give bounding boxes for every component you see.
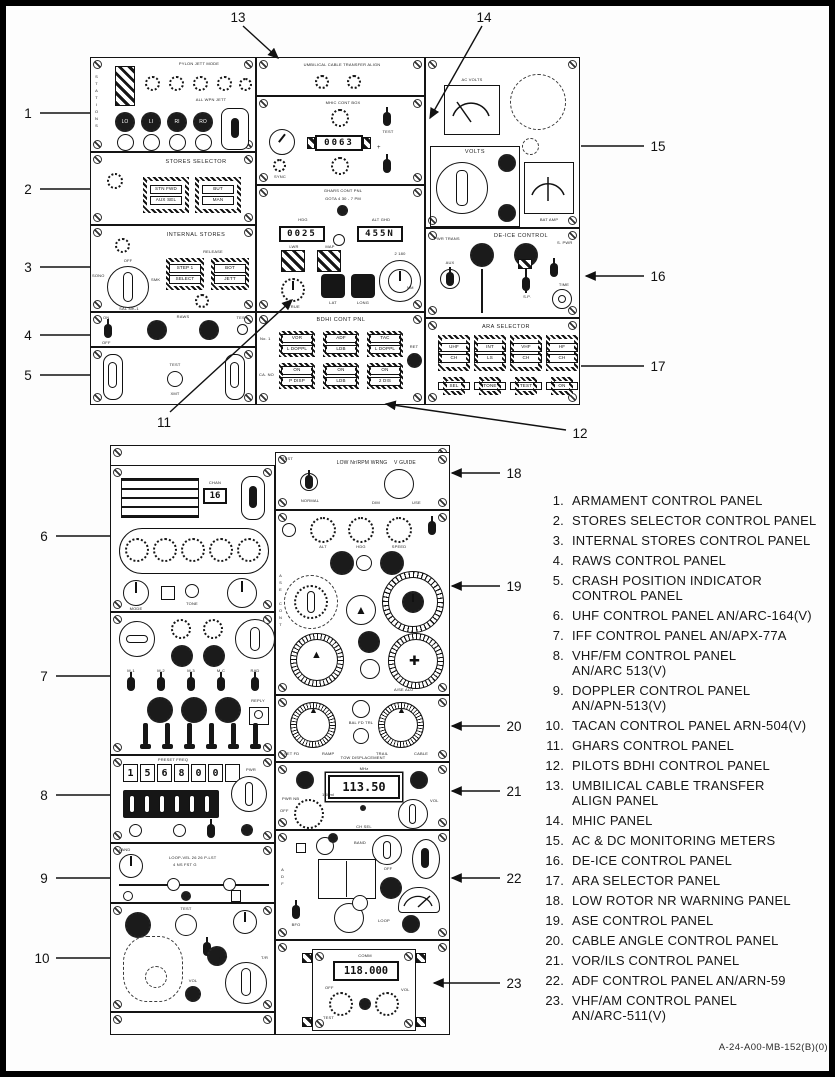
legend-item: 20.CABLE ANGLE CONTROL PANEL bbox=[540, 934, 832, 949]
legend-num: 14. bbox=[540, 814, 564, 829]
legend-num: 4. bbox=[540, 554, 564, 569]
lamp-square bbox=[231, 890, 241, 902]
cano-label: CA. NO bbox=[259, 373, 274, 378]
guarded-switch-icon bbox=[108, 362, 117, 388]
panel-internal-stores: INTERNAL STORES RELEASE OFF SONO SMK SAL… bbox=[90, 225, 256, 312]
panel-raws: ON OFF RAWS TEST bbox=[90, 312, 256, 347]
legend-item: 12.PILOTS BDHI CONTROL PANEL bbox=[540, 759, 832, 774]
master-switch-icon bbox=[231, 118, 239, 138]
true-label: TRUE bbox=[288, 305, 300, 310]
instrument-hole bbox=[510, 74, 566, 130]
corner-pad bbox=[416, 953, 426, 963]
instrument-hole-small bbox=[522, 138, 539, 155]
legend-line2: AN/ARC 513(V) bbox=[572, 664, 736, 679]
off-label: OFF bbox=[102, 341, 111, 346]
ara-sub-button: TEST bbox=[515, 377, 537, 395]
toggle-icon bbox=[157, 677, 165, 691]
bdhi-button: VOR L DOPPL bbox=[279, 331, 315, 357]
leader-12 bbox=[386, 404, 566, 430]
vol-label: VOL bbox=[189, 979, 198, 984]
slider-track bbox=[481, 269, 483, 313]
legend-text: IFF CONTROL PANEL AN/APX-77A bbox=[572, 629, 787, 644]
toggle-icon bbox=[383, 159, 391, 173]
dark-knob-icon bbox=[351, 274, 375, 298]
bat-amp-meter bbox=[524, 162, 574, 214]
sono-label: SONO bbox=[92, 274, 105, 279]
button-label: MAN bbox=[202, 196, 234, 205]
manual-page: STATIONS PYLON JETT MODE ALL WPN JETT LO… bbox=[0, 0, 835, 1077]
harness-circle bbox=[145, 966, 167, 988]
knob-icon bbox=[181, 891, 191, 901]
power-knob-handle bbox=[245, 782, 253, 806]
push-button-icon bbox=[337, 205, 348, 216]
knob-icon bbox=[203, 645, 225, 667]
knob-icon bbox=[173, 824, 186, 837]
legend-text: DOPPLER CONTROL PANELAN/APN-513(V) bbox=[572, 684, 750, 713]
code-knob-icon bbox=[215, 697, 241, 723]
knob-icon bbox=[273, 159, 286, 172]
toggle-icon bbox=[187, 677, 195, 691]
knob-handle bbox=[409, 804, 416, 824]
preset-display: 16 bbox=[203, 488, 227, 504]
callout-13: 13 bbox=[226, 10, 250, 25]
test-knob bbox=[175, 914, 197, 936]
toggle-icon bbox=[383, 112, 391, 126]
panel-umbilical-align: UMBILICAL CABLE TRANSFER ALIGN bbox=[256, 57, 425, 96]
code-knob-icon bbox=[181, 697, 207, 723]
legend-item: 18.LOW ROTOR NR WARNING PANEL bbox=[540, 894, 832, 909]
callout-21: 21 bbox=[502, 784, 526, 799]
panel-iff: M-1 M-2 M-3 M-C RAD REPLY bbox=[110, 612, 275, 755]
lever-switch-icon bbox=[209, 723, 214, 745]
toggle-icon bbox=[446, 272, 454, 286]
legend-num: 3. bbox=[540, 534, 564, 549]
knob-icon bbox=[107, 173, 123, 189]
test-knob-icon bbox=[167, 371, 183, 387]
knob-icon bbox=[115, 238, 130, 253]
display-tab bbox=[363, 137, 371, 149]
lamp-square bbox=[296, 843, 306, 853]
callout-12: 12 bbox=[568, 426, 592, 441]
legend-num: 11. bbox=[540, 739, 564, 754]
triangle-pointer: ▲ bbox=[397, 706, 406, 715]
button-label: SELECT bbox=[169, 275, 201, 284]
bal-label: BAL FD TRL bbox=[349, 721, 373, 726]
knob-icon bbox=[125, 538, 149, 562]
legend-num: 2. bbox=[540, 514, 564, 529]
button-label: UHF bbox=[438, 343, 470, 352]
nm-label: NM bbox=[407, 286, 414, 291]
panel-ghars: GHARS CONT PNL GOTA 4 30 - 7 PM HDG 0025… bbox=[256, 185, 425, 312]
station-ro: RO bbox=[199, 119, 207, 125]
lever-switch-icon bbox=[187, 723, 192, 745]
note-line2: 4 NS FST G bbox=[173, 863, 197, 868]
legend-line1: ADF CONTROL PANEL AN/ARN-59 bbox=[572, 973, 786, 988]
legend-line2: AN/ARC-511(V) bbox=[572, 1009, 737, 1024]
knob-icon bbox=[129, 824, 142, 837]
nut-icon bbox=[333, 234, 345, 246]
corner-pad bbox=[416, 1017, 426, 1027]
preset-slot bbox=[129, 795, 135, 813]
legend-item: 2.STORES SELECTOR CONTROL PANEL bbox=[540, 514, 832, 529]
digit: 0 bbox=[208, 764, 223, 782]
legend-num: 15. bbox=[540, 834, 564, 849]
mhz-label: MHz bbox=[360, 767, 369, 772]
ara-button: HF CH bbox=[546, 335, 578, 371]
digit: 6 bbox=[157, 764, 172, 782]
ara-button: VHF CH bbox=[510, 335, 542, 371]
volume-knob bbox=[375, 992, 399, 1016]
ret-label: RET bbox=[410, 345, 419, 350]
legend-item: 21.VOR/ILS CONTROL PANEL bbox=[540, 954, 832, 969]
callout-23: 23 bbox=[502, 976, 526, 991]
dial-core-knob bbox=[402, 591, 424, 613]
lamp-icon bbox=[117, 134, 134, 151]
smk-label: SMK bbox=[151, 278, 160, 283]
legend-num: 18. bbox=[540, 894, 564, 909]
legend-item: 22.ADF CONTROL PANEL AN/ARN-59 bbox=[540, 974, 832, 989]
time-label: TIME bbox=[559, 283, 569, 288]
reply-lamp bbox=[254, 710, 263, 719]
legend-text: GHARS CONTROL PANEL bbox=[572, 739, 734, 754]
knob-icon bbox=[282, 523, 296, 537]
diagram-canvas: STATIONS PYLON JETT MODE ALL WPN JETT LO… bbox=[0, 0, 835, 1077]
knob-icon bbox=[185, 584, 199, 598]
blank-panel bbox=[110, 1012, 275, 1035]
test-label: TEST bbox=[282, 457, 293, 462]
volts-label: VOLTS bbox=[465, 149, 485, 155]
legend-text: VHF/FM CONTROL PANELAN/ARC 513(V) bbox=[572, 649, 736, 678]
legend-item: 16.DE-ICE CONTROL PANEL bbox=[540, 854, 832, 869]
legend-text: ARA SELECTOR PANEL bbox=[572, 874, 720, 889]
legend-text: LOW ROTOR NR WARNING PANEL bbox=[572, 894, 791, 909]
leader-13 bbox=[243, 26, 278, 58]
alt-label: ALT bbox=[319, 545, 327, 550]
legend-item: 5.CRASH POSITION INDICATORCONTROL PANEL bbox=[540, 574, 832, 603]
panel-vhfam-outer: COMM 118.000 OFF TEST VOL bbox=[275, 940, 450, 1035]
knob-icon bbox=[331, 157, 349, 175]
legend-num: 19. bbox=[540, 914, 564, 929]
button-label: JETT bbox=[214, 275, 246, 284]
legend-line1: INTERNAL STORES CONTROL PANEL bbox=[572, 533, 810, 548]
toggle-icon bbox=[305, 475, 313, 489]
hdg-label: HDG bbox=[356, 545, 366, 550]
pwr-trans-label: PWR TRANS bbox=[434, 237, 460, 242]
panel-title: GHARS CONT PNL bbox=[324, 189, 362, 194]
jettison-label: ALL WPN JETT bbox=[196, 98, 226, 103]
knob-icon bbox=[310, 517, 336, 543]
normal-label: NORMAL bbox=[301, 499, 319, 504]
panel-armament: STATIONS PYLON JETT MODE ALL WPN JETT LO… bbox=[90, 57, 256, 152]
callout-2: 2 bbox=[16, 182, 40, 197]
panel-title: ARA SELECTOR bbox=[482, 324, 530, 330]
legend-num: 10. bbox=[540, 719, 564, 734]
knob-icon bbox=[330, 551, 354, 575]
knob-handle bbox=[383, 841, 391, 859]
power-knob bbox=[294, 799, 324, 829]
legend-num: 9. bbox=[540, 684, 564, 713]
legend-num: 22. bbox=[540, 974, 564, 989]
set-label: 2 180 bbox=[394, 252, 405, 257]
guarded-switch-icon bbox=[230, 362, 239, 388]
side-label: ASE CONT bbox=[278, 573, 283, 629]
button-label: CH bbox=[438, 354, 470, 363]
off-label: OFF bbox=[325, 986, 334, 991]
release-button: BOT JETT bbox=[211, 258, 249, 290]
scale-line bbox=[119, 884, 269, 886]
legend-line1: CRASH POSITION INDICATOR bbox=[572, 573, 762, 588]
knob-icon bbox=[380, 551, 404, 575]
callout-3: 3 bbox=[16, 260, 40, 275]
knob-icon bbox=[296, 771, 314, 789]
legend-num: 21. bbox=[540, 954, 564, 969]
button-label: STEP 1 bbox=[169, 264, 201, 273]
panel-title: INTERNAL STORES bbox=[167, 232, 226, 238]
toggle-icon bbox=[104, 324, 112, 338]
button-label: SEL bbox=[438, 382, 470, 391]
legend-num: 6. bbox=[540, 609, 564, 624]
knob-icon bbox=[203, 619, 223, 639]
lever-switch-icon bbox=[165, 723, 170, 745]
panel-deice: PWR TRANS DE-ICE CONTROL S. PWR AUX S.P.… bbox=[425, 228, 580, 318]
meter-face bbox=[445, 86, 497, 132]
legend-line1: VHF/FM CONTROL PANEL bbox=[572, 648, 736, 663]
legend-text: CRASH POSITION INDICATORCONTROL PANEL bbox=[572, 574, 762, 603]
knob-icon bbox=[348, 517, 374, 543]
oval-knob-core bbox=[421, 848, 429, 868]
legend-text: DE-ICE CONTROL PANEL bbox=[572, 854, 732, 869]
legend-line2: CONTROL PANEL bbox=[572, 589, 762, 604]
legend-text: PILOTS BDHI CONTROL PANEL bbox=[572, 759, 770, 774]
legend-text: INTERNAL STORES CONTROL PANEL bbox=[572, 534, 810, 549]
legend-item: 10.TACAN CONTROL PANEL ARN-504(V) bbox=[540, 719, 832, 734]
lamp-icon bbox=[143, 134, 160, 151]
hatched-button bbox=[317, 250, 341, 272]
legend-line1: RAWS CONTROL PANEL bbox=[572, 553, 726, 568]
adj-label: A/SE ADJ bbox=[394, 688, 413, 693]
bdhi-button: ON 2 DIS bbox=[367, 363, 403, 389]
preset-slot bbox=[144, 795, 150, 813]
long-knob-label: LONG bbox=[357, 301, 369, 306]
button-label: BOT bbox=[214, 264, 246, 273]
meter-face bbox=[399, 888, 437, 910]
panel-uhf: CHAN 16 MODE TONE bbox=[110, 465, 275, 612]
test-label: TEST bbox=[169, 363, 180, 368]
bdhi-button: ON P DISP bbox=[279, 363, 315, 389]
toggle-icon bbox=[428, 521, 436, 535]
toggle-icon bbox=[127, 677, 135, 691]
legend-num: 5. bbox=[540, 574, 564, 603]
master-knob-handle bbox=[250, 627, 260, 651]
pwr-label: PWR NB bbox=[282, 797, 299, 802]
button-label: 2 DIS bbox=[369, 377, 401, 386]
panel-adf: ADF BAND OFF BFO LOOP bbox=[275, 830, 450, 940]
code-window-slot bbox=[126, 635, 148, 643]
button-label: LDB bbox=[325, 345, 357, 354]
bdhi-button: ON LDB bbox=[323, 363, 359, 389]
legend-item: 17.ARA SELECTOR PANEL bbox=[540, 874, 832, 889]
triangle-pointer: ▲ bbox=[309, 706, 318, 715]
knob-icon bbox=[470, 243, 494, 267]
panel-title: LOW Nr/RPM WRNG bbox=[337, 461, 388, 467]
sal-label: SAL MK-1 bbox=[119, 307, 139, 312]
callout-15: 15 bbox=[646, 139, 670, 154]
knob-icon bbox=[331, 109, 349, 127]
heading-display: 0025 bbox=[279, 226, 325, 242]
legend-item: 19.ASE CONTROL PANEL bbox=[540, 914, 832, 929]
panel-ase: ASE CONT ALT HDG SPEED ▲ ▲ ✚ A/SE ADJ bbox=[275, 510, 450, 695]
chan-label: CHAN bbox=[209, 481, 221, 486]
callout-20: 20 bbox=[502, 719, 526, 734]
ara-button: UHF CH bbox=[438, 335, 470, 371]
bdhi-button: ADF LDB bbox=[323, 331, 359, 357]
legend-num: 13. bbox=[540, 779, 564, 808]
lat-label: ALT GHD bbox=[372, 218, 390, 223]
spwr-label: S. PWR bbox=[557, 241, 572, 246]
volume-lever bbox=[249, 486, 257, 508]
true-knob bbox=[281, 278, 305, 302]
band-label: BAND bbox=[354, 841, 366, 846]
knob-icon bbox=[195, 294, 209, 308]
ramp-label: RAMP bbox=[322, 752, 334, 757]
panel-title: PYLON JETT MODE bbox=[179, 62, 219, 67]
legend-line1: DOPPLER CONTROL PANEL bbox=[572, 683, 750, 698]
station-li: LI bbox=[149, 119, 153, 125]
frequency-digits: 1 5 6 8 0 0 bbox=[123, 764, 240, 782]
lamp-icon bbox=[195, 134, 212, 151]
off-label: OFF bbox=[280, 809, 289, 814]
legend-line1: MHIC PANEL bbox=[572, 813, 653, 828]
lamp-icon bbox=[169, 134, 186, 151]
legend-num: 7. bbox=[540, 629, 564, 644]
pwr-label: PWR bbox=[246, 768, 256, 773]
panel-stores-selector: STORES SELECTOR STN FWD AUX SEL BUT MAN bbox=[90, 152, 256, 225]
toggle-icon bbox=[217, 677, 225, 691]
off-label: OFF bbox=[124, 259, 133, 264]
digit: 8 bbox=[174, 764, 189, 782]
code-knob-icon bbox=[147, 697, 173, 723]
preset-slot bbox=[159, 795, 165, 813]
speed-label: SPEED bbox=[392, 545, 407, 550]
callout-6: 6 bbox=[32, 529, 56, 544]
knob-icon bbox=[356, 555, 372, 571]
legend-text: UHF CONTROL PANEL AN/ARC-164(V) bbox=[572, 609, 812, 624]
pointer-knob bbox=[233, 910, 257, 934]
lever-switch-icon bbox=[253, 723, 258, 745]
knob-icon bbox=[199, 320, 219, 340]
panel-title: MHIC CONT BOX bbox=[326, 101, 361, 106]
knob-icon bbox=[410, 771, 428, 789]
knob-icon bbox=[171, 645, 193, 667]
gauge-needle bbox=[278, 134, 285, 143]
ara-button: INT LS bbox=[474, 335, 506, 371]
button-label: AUX SEL bbox=[150, 196, 182, 205]
legend-item: 4.RAWS CONTROL PANEL bbox=[540, 554, 832, 569]
test-button-icon bbox=[237, 324, 248, 335]
knob-icon bbox=[359, 998, 371, 1010]
screws bbox=[257, 313, 424, 404]
button-label: TAC bbox=[369, 334, 401, 343]
knob-icon bbox=[123, 891, 133, 901]
tone-label: TONE bbox=[186, 602, 198, 607]
button-label: ON bbox=[369, 366, 401, 375]
legend-line1: VHF/AM CONTROL PANEL bbox=[572, 993, 737, 1008]
callout-11: 11 bbox=[152, 415, 176, 430]
knob-icon bbox=[193, 76, 208, 91]
panel-side-label: STATIONS bbox=[94, 74, 99, 130]
ml-label: 1.0 ml bbox=[322, 793, 334, 798]
preset-slot bbox=[189, 795, 195, 813]
callout-17: 17 bbox=[646, 359, 670, 374]
legend-item: 23.VHF/AM CONTROL PANELAN/ARC-511(V) bbox=[540, 994, 832, 1023]
frequency-display: 118.000 bbox=[333, 961, 399, 981]
knob-icon bbox=[239, 78, 252, 91]
callout-4: 4 bbox=[16, 328, 40, 343]
use-label: USE bbox=[412, 501, 421, 506]
panel-low-rotor: TEST LOW Nr/RPM WRNG V GUIDE NORMAL DIM … bbox=[275, 452, 450, 510]
legend-line1: AC & DC MONITORING METERS bbox=[572, 833, 775, 848]
legend-line1: CABLE ANGLE CONTROL PANEL bbox=[572, 933, 779, 948]
note-line1: LOOP-VEL 26 26 P-LST bbox=[169, 856, 216, 861]
panel-title: DE-ICE CONTROL bbox=[494, 233, 548, 239]
tow-label: TOW DISPLACEMENT bbox=[341, 756, 386, 761]
legend-line1: ARA SELECTOR PANEL bbox=[572, 873, 720, 888]
legend-text: TACAN CONTROL PANEL ARN-504(V) bbox=[572, 719, 806, 734]
crank-handle bbox=[328, 833, 338, 843]
callout-14: 14 bbox=[472, 10, 496, 25]
legend-line1: ASE CONTROL PANEL bbox=[572, 913, 713, 928]
legend-text: UMBILICAL CABLE TRANSFERALIGN PANEL bbox=[572, 779, 765, 808]
legend-item: 8.VHF/FM CONTROL PANELAN/ARC 513(V) bbox=[540, 649, 832, 678]
panel-ara-selector: ARA SELECTOR UHF CH INT LS VHF CH HF CH … bbox=[425, 318, 580, 405]
vol-label: VOL bbox=[430, 799, 439, 804]
ara-sub-button: SEL bbox=[443, 377, 465, 395]
triangle-icon: ▲ bbox=[355, 604, 367, 616]
button-label: STN FWD bbox=[150, 185, 182, 194]
vguide-label: V GUIDE bbox=[394, 461, 416, 467]
cable-label: CABLE bbox=[414, 752, 428, 757]
button-label: ON bbox=[546, 382, 578, 391]
knob-icon bbox=[169, 76, 184, 91]
knob-icon bbox=[185, 986, 201, 1002]
sp-label: S.P. bbox=[523, 295, 531, 300]
panel-crash-position: TEST XMT bbox=[90, 347, 256, 405]
center-dot bbox=[360, 805, 366, 811]
toggle-icon bbox=[550, 263, 558, 277]
callout-8: 8 bbox=[32, 788, 56, 803]
panel-doppler: LAND LOOP-VEL 26 26 P-LST 4 NS FST G bbox=[110, 843, 275, 903]
legend-line2: AN/APN-513(V) bbox=[572, 699, 750, 714]
legend-text: ARMAMENT CONTROL PANEL bbox=[572, 494, 763, 509]
panel-mhic: MHIC CONT BOX TEST 0063 + SYNC bbox=[256, 96, 425, 185]
panel-title: BDHI CONT PNL bbox=[317, 317, 366, 323]
figure-reference-code: A-24-A00-MB-152(B)(0) bbox=[560, 1042, 828, 1053]
legend-item: 11.GHARS CONTROL PANEL bbox=[540, 739, 832, 754]
knob-icon bbox=[386, 517, 412, 543]
button-label: CH bbox=[546, 354, 578, 363]
legend-text: MHIC PANEL bbox=[572, 814, 653, 829]
button-label: L DOPPL bbox=[369, 345, 401, 354]
hatched-button bbox=[281, 250, 305, 272]
panel-note: GOTA 4 30 - 7 PM bbox=[325, 197, 361, 202]
knob-icon bbox=[237, 538, 261, 562]
legend-text: RAWS CONTROL PANEL bbox=[572, 554, 726, 569]
lat-display: 455N bbox=[357, 226, 403, 242]
legend-text: ADF CONTROL PANEL AN/ARN-59 bbox=[572, 974, 786, 989]
preset-slot bbox=[174, 795, 180, 813]
aux-label: AUX bbox=[446, 261, 455, 266]
button-label: LS bbox=[474, 354, 506, 363]
